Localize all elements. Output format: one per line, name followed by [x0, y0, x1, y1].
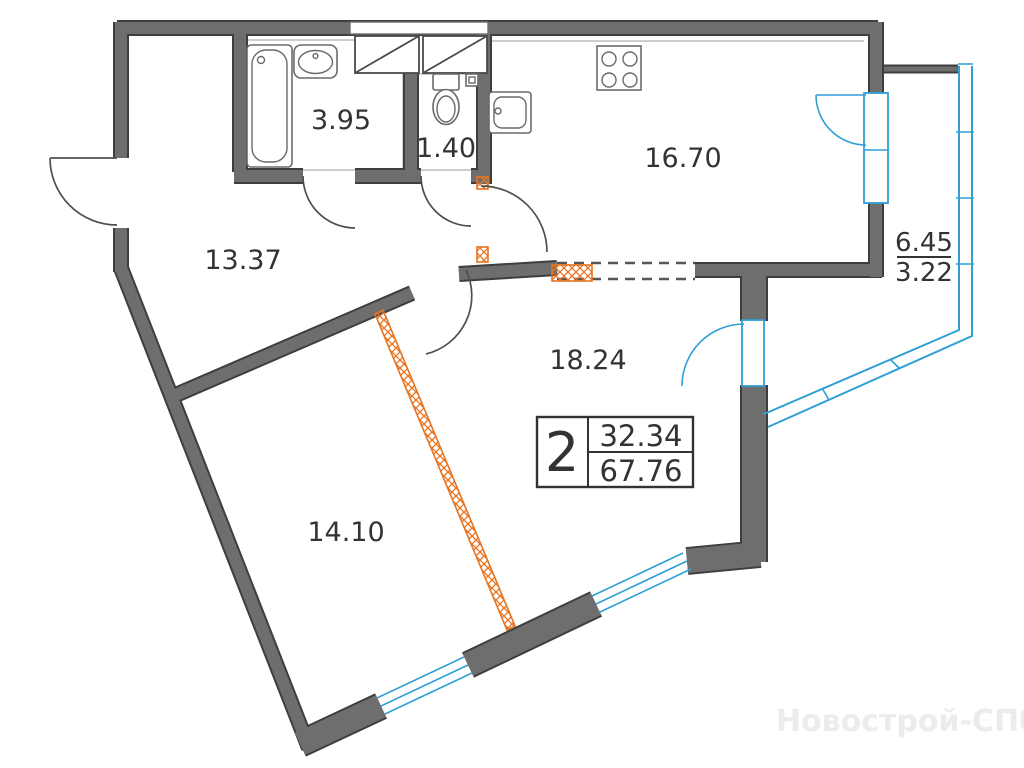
summary-total-area: 67.76: [599, 454, 682, 488]
floor-plan: 3.95 1.40 16.70 13.37 18.24 14.10 6.45 3…: [0, 0, 1024, 768]
area-label-hallway: 13.37: [204, 245, 281, 276]
area-label-toilet: 1.40: [416, 133, 476, 164]
area-label-bathroom: 3.95: [311, 105, 371, 136]
area-label-living-room: 18.24: [549, 345, 626, 376]
washbasin-icon: [294, 45, 337, 78]
summary-room-count: 2: [545, 421, 579, 484]
summary-box: 2 32.34 67.76: [537, 417, 693, 488]
watermark: Новострой-СПб: [776, 704, 1024, 739]
balcony-area-label: 6.45 3.22: [895, 228, 953, 288]
area-label-kitchen: 16.70: [644, 143, 721, 174]
kitchen-sink-icon: [489, 92, 531, 133]
summary-living-area: 32.34: [599, 419, 682, 453]
floor-plan-page: 3.95 1.40 16.70 13.37 18.24 14.10 6.45 3…: [0, 0, 1024, 768]
stove-icon: [597, 46, 641, 90]
balcony-area-counted: 3.22: [895, 258, 953, 288]
balcony-area-total: 6.45: [895, 228, 953, 258]
area-label-bedroom: 14.10: [307, 517, 384, 548]
bathtub-icon: [247, 45, 292, 167]
wall-opening: [350, 22, 488, 34]
